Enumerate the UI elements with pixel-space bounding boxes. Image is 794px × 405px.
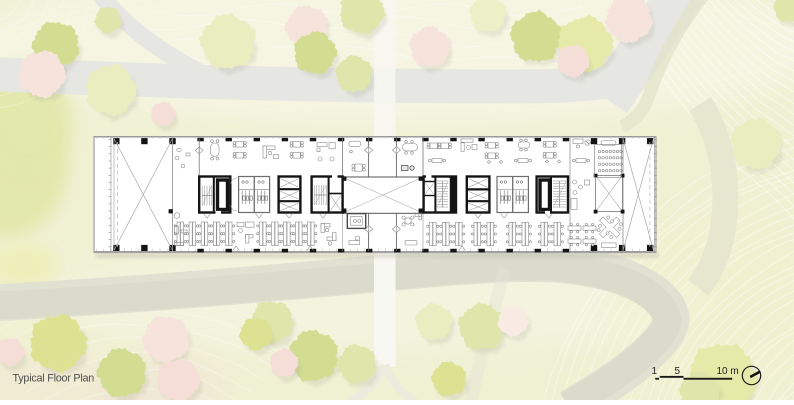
svg-text:10 m: 10 m [717,366,739,377]
svg-text:1: 1 [652,366,658,377]
svg-text:5: 5 [675,366,681,377]
svg-text:Typical Floor Plan: Typical Floor Plan [13,373,95,385]
